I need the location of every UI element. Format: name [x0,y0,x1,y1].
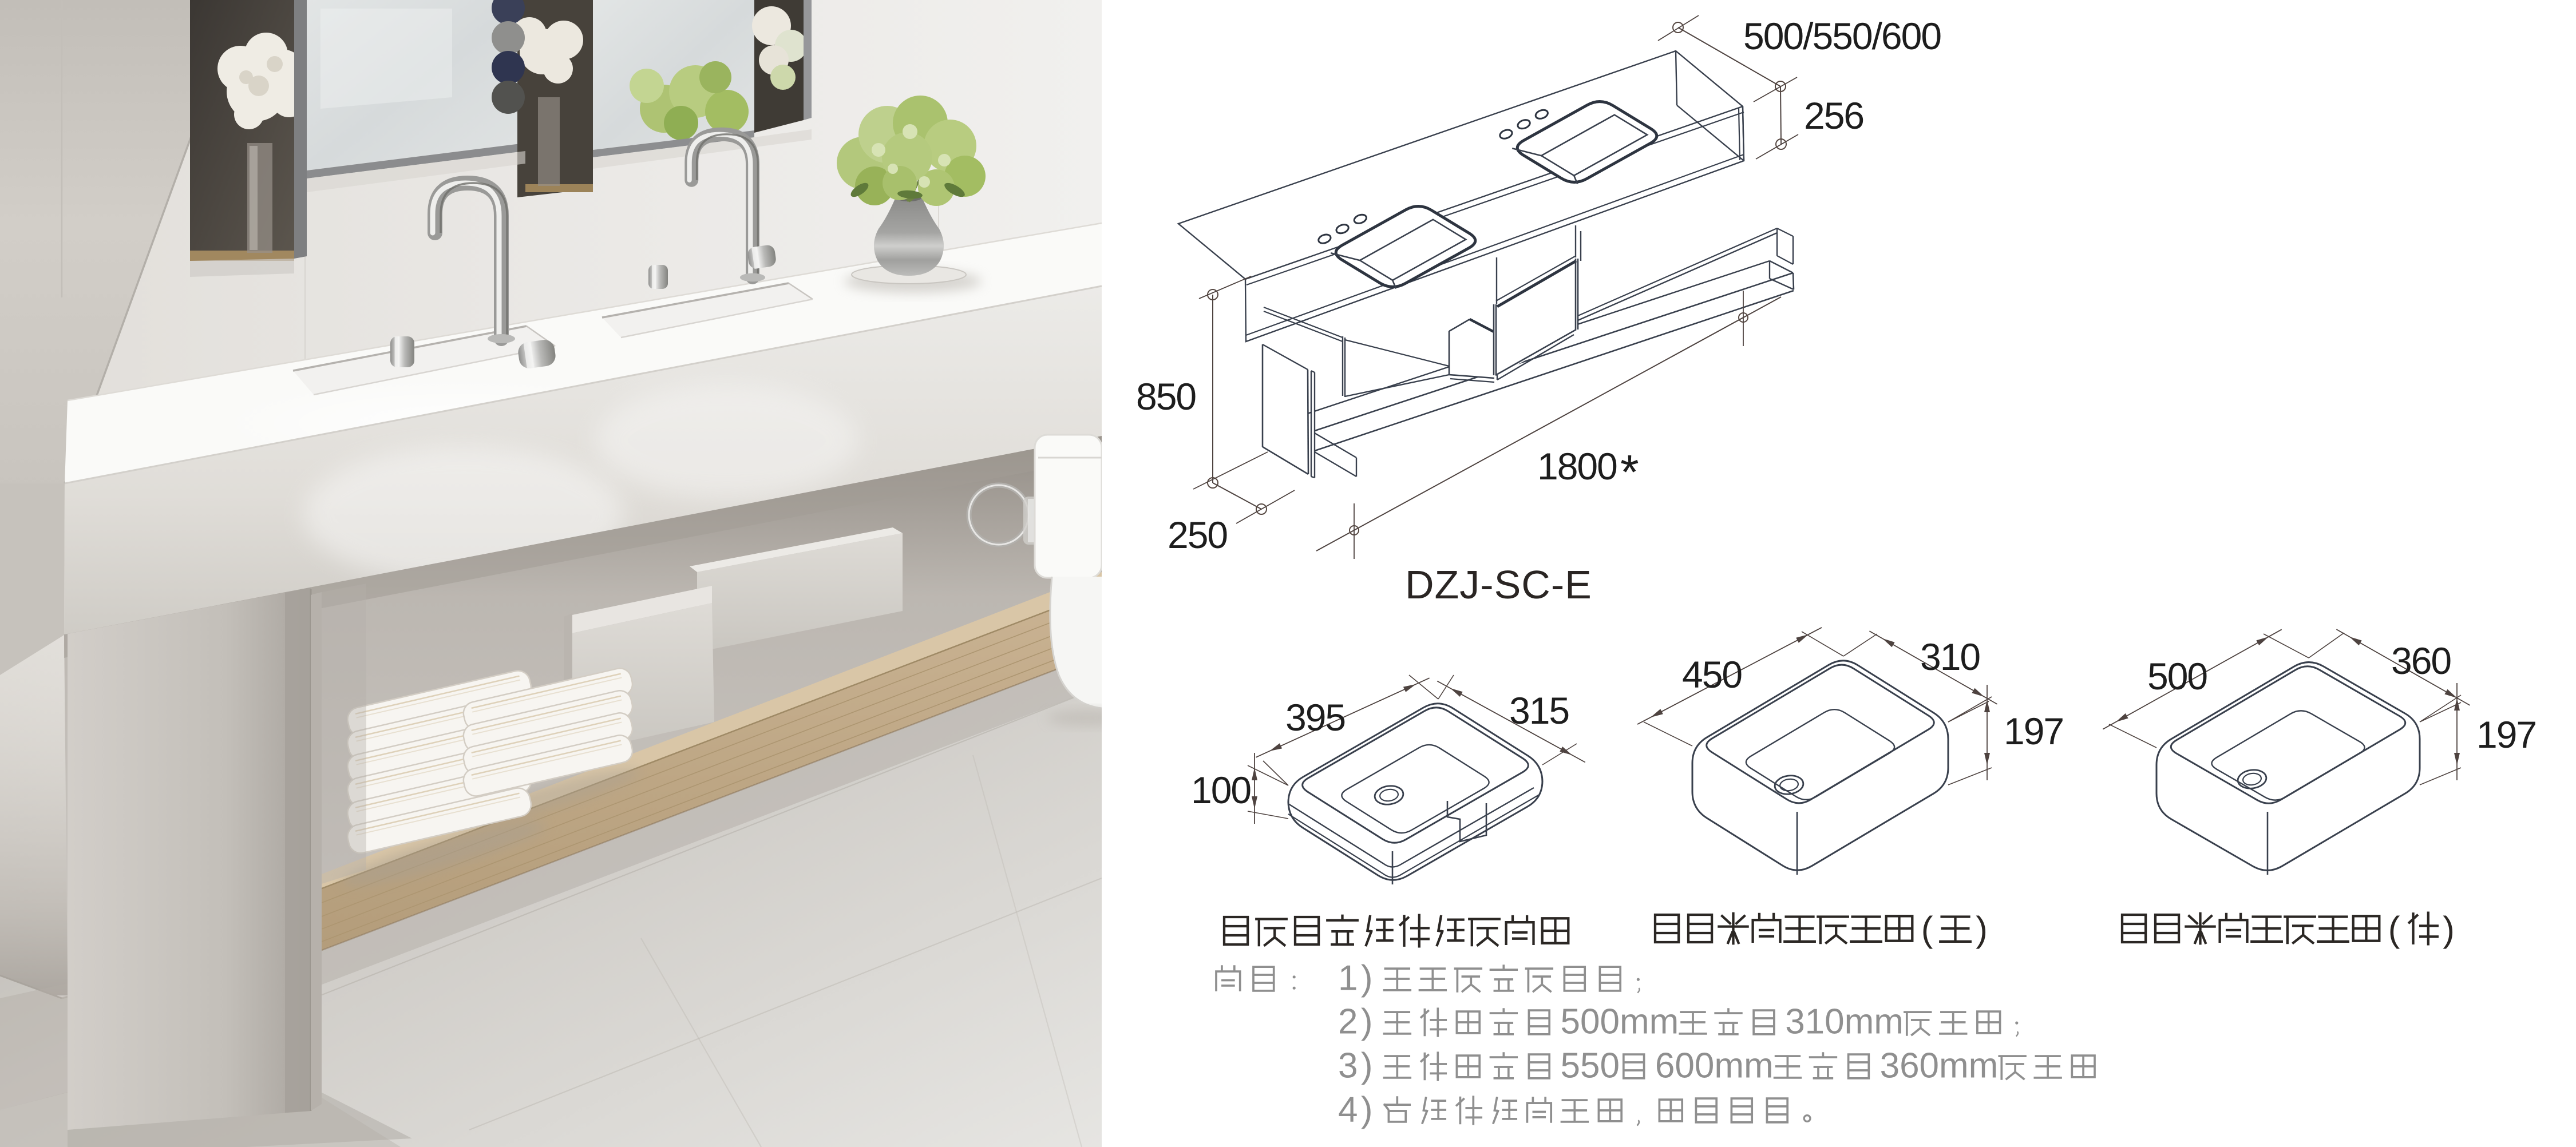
svg-text:2: 2 [1338,1002,1358,1041]
svg-text:3: 3 [1338,1046,1358,1085]
svg-text:315: 315 [1509,689,1569,732]
svg-text:): ) [1361,1090,1373,1129]
svg-text:1800: 1800 [1537,445,1617,487]
svg-text:*: * [1620,445,1639,499]
svg-text:550: 550 [1561,1046,1620,1085]
svg-text:360mm: 360mm [1880,1046,1999,1085]
svg-text:360: 360 [2391,640,2451,682]
svg-text:): ) [2443,910,2455,949]
svg-text:250: 250 [1168,514,1227,556]
svg-text:450: 450 [1682,653,1742,696]
svg-text:500: 500 [2147,655,2207,697]
svg-text:256: 256 [1804,94,1863,137]
svg-text:1: 1 [1338,958,1358,998]
svg-text:500/550/600: 500/550/600 [1743,15,1941,57]
svg-text:500mm: 500mm [1561,1002,1679,1041]
svg-text:): ) [1361,1046,1373,1085]
svg-text:DZJ-SC-E: DZJ-SC-E [1405,562,1592,607]
svg-text:(: ( [1921,910,1933,949]
svg-text:395: 395 [1285,696,1345,739]
svg-text:4: 4 [1338,1090,1358,1129]
svg-text:850: 850 [1136,375,1196,418]
svg-text:): ) [1976,910,1988,949]
svg-text:197: 197 [2004,710,2063,752]
svg-text:197: 197 [2476,713,2536,756]
svg-text:): ) [1361,958,1373,998]
svg-text:600mm: 600mm [1655,1046,1774,1085]
svg-text:100: 100 [1191,769,1251,811]
svg-text:): ) [1361,1002,1373,1041]
svg-text:(: ( [2388,910,2400,949]
svg-text:310: 310 [1920,636,1980,678]
svg-text:310mm: 310mm [1785,1002,1904,1041]
